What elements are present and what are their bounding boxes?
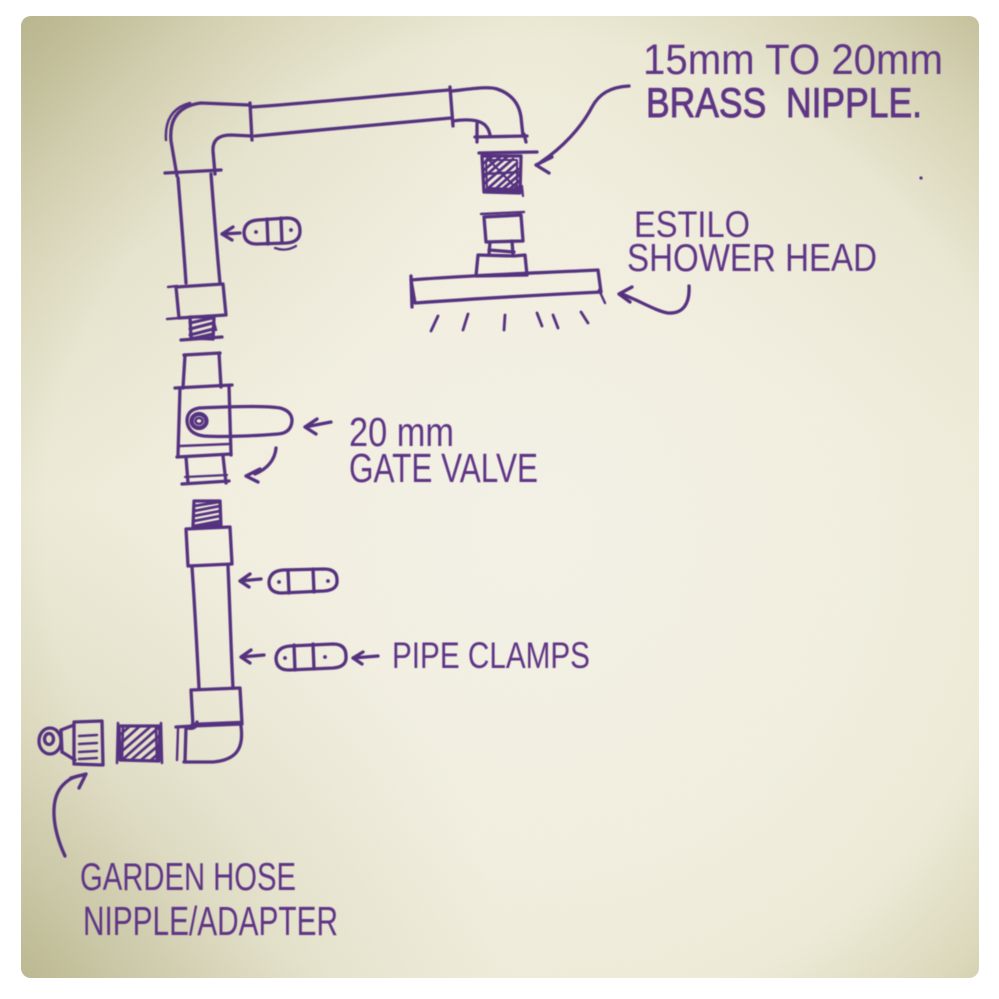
svg-text:GATE VALVE: GATE VALVE	[349, 445, 538, 491]
svg-text:GARDEN HOSE: GARDEN HOSE	[80, 856, 296, 899]
svg-text:PIPE CLAMPS: PIPE CLAMPS	[392, 635, 590, 676]
svg-text:15mm TO 20mm: 15mm TO 20mm	[643, 36, 943, 84]
svg-text:BRASS NIPPLE.: BRASS NIPPLE.	[646, 79, 922, 126]
svg-text:SHOWER HEAD: SHOWER HEAD	[627, 237, 877, 280]
svg-text:NIPPLE/ADAPTER: NIPPLE/ADAPTER	[83, 898, 338, 944]
